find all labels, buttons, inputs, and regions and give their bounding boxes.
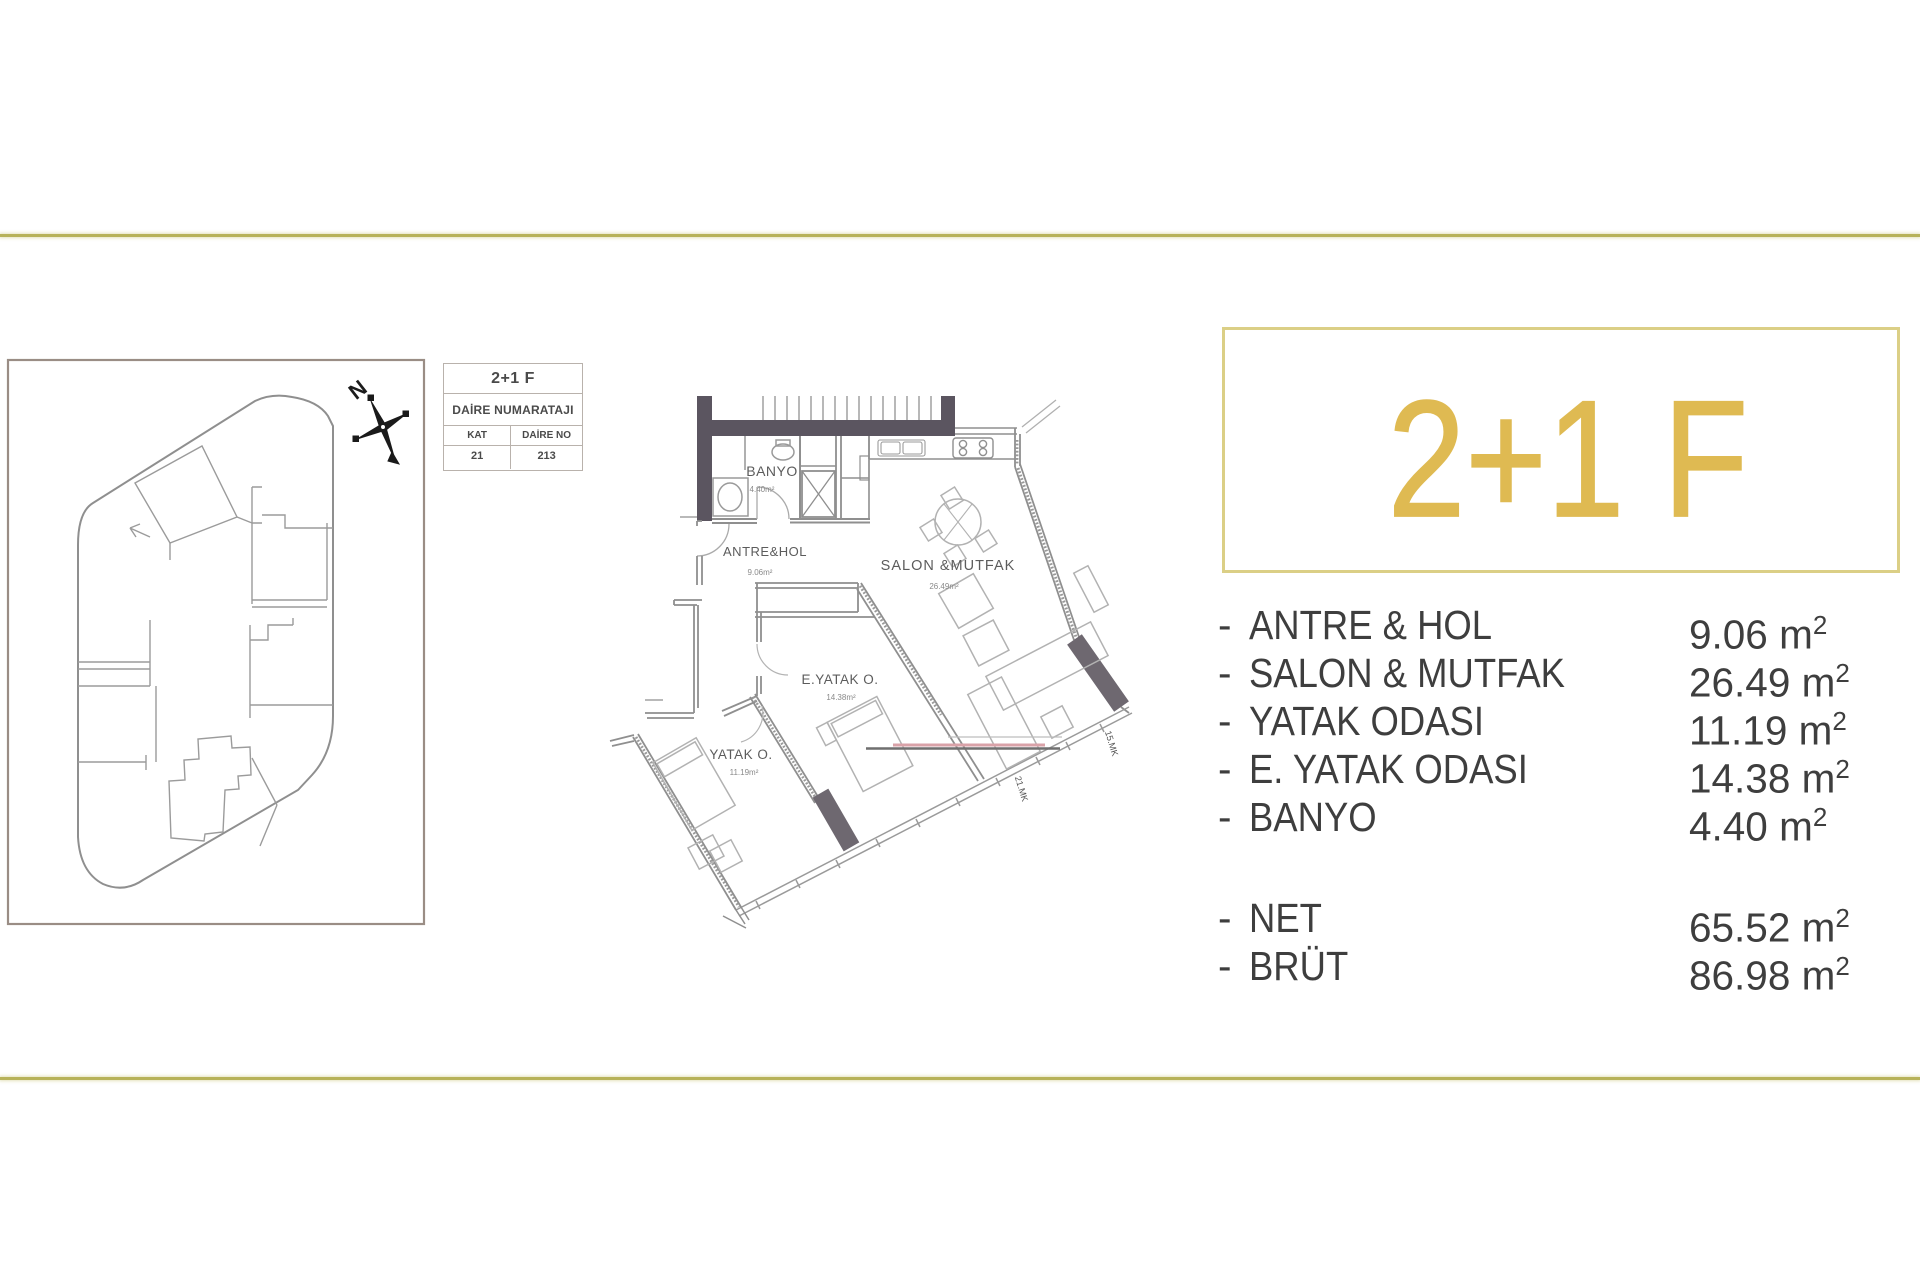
svg-text:BANYO: BANYO [746,463,798,479]
svg-text:ANTRE&HOL: ANTRE&HOL [723,544,807,559]
svg-text:N: N [344,375,372,404]
svg-text:26.49m²: 26.49m² [929,582,959,591]
svg-text:9.06m²: 9.06m² [748,568,773,577]
svg-text:15.MK: 15.MK [1103,730,1120,758]
svg-text:SALON &MUTFAK: SALON &MUTFAK [881,558,1016,574]
svg-text:4.40m²: 4.40m² [750,485,775,494]
svg-text:14.38m²: 14.38m² [826,693,856,702]
svg-text:YATAK O.: YATAK O. [709,747,772,762]
svg-text:11.19m²: 11.19m² [730,768,759,777]
svg-text:21.MK: 21.MK [1013,775,1030,803]
svg-text:E.YATAK O.: E.YATAK O. [801,672,878,687]
